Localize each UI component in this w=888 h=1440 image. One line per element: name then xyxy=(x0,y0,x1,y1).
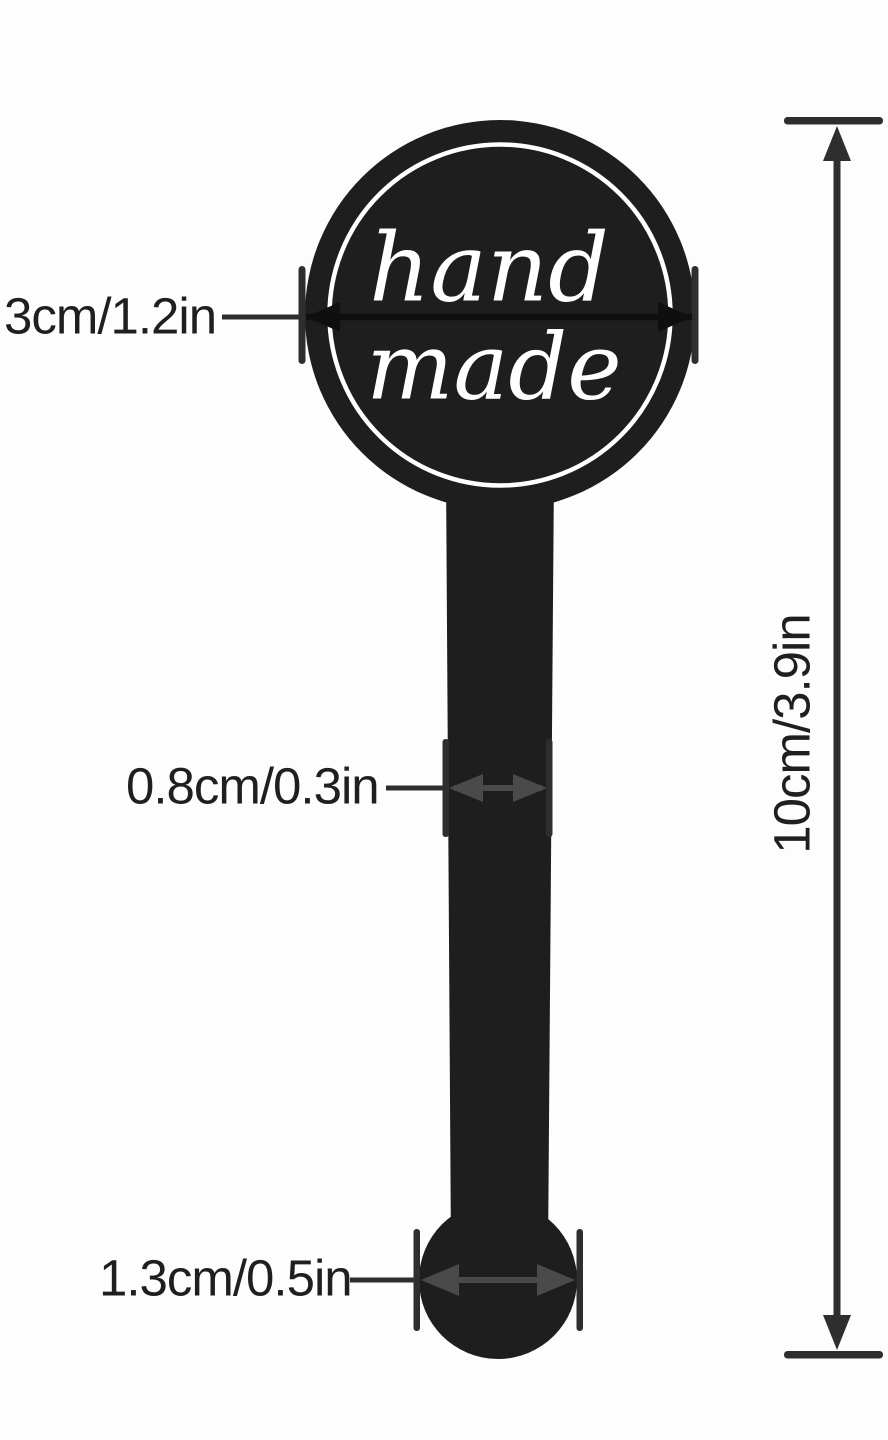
stem-width-left-tick xyxy=(443,739,450,837)
height-arrowhead-top xyxy=(823,126,851,161)
total-height-label: 10cm/3.9in xyxy=(767,614,818,853)
tag-script-line2: made xyxy=(366,321,621,413)
circle-width-label: 3cm/1.2in xyxy=(4,290,216,341)
bottom-width-label: 1.3cm/0.5in xyxy=(99,1252,352,1303)
stem-width-label: 0.8cm/0.3in xyxy=(126,760,379,811)
height-bottom-cap xyxy=(784,1351,883,1359)
tag-stem xyxy=(446,470,554,1255)
circle-width-right-tick xyxy=(692,266,699,364)
height-top-cap xyxy=(784,117,883,125)
tag-script-line1: hand xyxy=(369,222,609,317)
circle-width-left-tick xyxy=(299,266,306,364)
bottom-width-right-tick xyxy=(577,1229,584,1331)
product-dimension-diagram: hand made 3cm/1.2in 0.8cm/0.3in 1.3cm/0.… xyxy=(0,0,888,1440)
height-arrowhead-bottom xyxy=(823,1315,851,1350)
bottom-width-left-tick xyxy=(414,1229,421,1331)
